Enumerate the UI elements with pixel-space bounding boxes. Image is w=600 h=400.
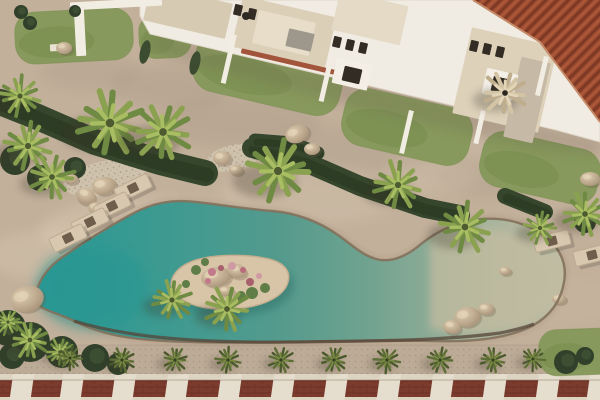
flower-bush (218, 265, 224, 271)
shrub (14, 5, 28, 19)
crosswalk-stripe (112, 374, 137, 400)
flower-bush (228, 262, 236, 270)
aerial-scene-canvas (0, 0, 600, 400)
crosswalk-stripe (10, 374, 35, 400)
crosswalk-stripe (536, 374, 561, 400)
flower-bush (208, 268, 216, 276)
shrub (554, 350, 578, 374)
crosswalk-stripe (271, 374, 296, 400)
crosswalk-stripe (483, 374, 508, 400)
shrub (81, 344, 109, 372)
island-shrub (260, 283, 270, 293)
crosswalk-stripe (430, 374, 455, 400)
crosswalk-stripe (60, 374, 85, 400)
flower-bush (256, 273, 262, 279)
crosswalk-stripe (218, 374, 243, 400)
paved-road (0, 374, 600, 400)
flower-bush (246, 278, 254, 286)
chimney (242, 12, 250, 20)
flower-bush (240, 267, 246, 273)
crosswalk-stripe (324, 374, 349, 400)
island-shrub (201, 258, 209, 266)
island-shrub (191, 265, 201, 275)
crosswalk-stripe (165, 374, 190, 400)
lagoon-pool (36, 201, 568, 343)
crosswalk-stripe (377, 374, 402, 400)
island-shrub (182, 280, 190, 288)
shrub (69, 5, 81, 17)
shrub (576, 347, 594, 365)
shrub (23, 16, 37, 30)
resort-aerial-render (0, 0, 600, 400)
flower-bush (205, 278, 211, 284)
